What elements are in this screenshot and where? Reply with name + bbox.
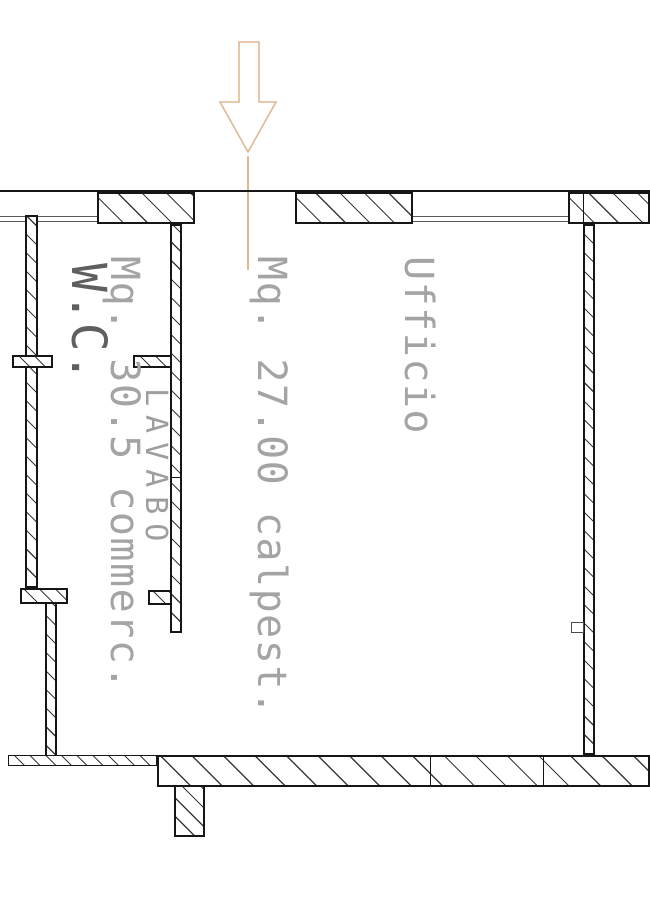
window-sill-left xyxy=(0,216,97,222)
bottom-exterior-wall xyxy=(157,755,650,787)
top-wall-pier-joint-line xyxy=(583,192,584,224)
office-area-commercial-label: Mq. 30.5 commerc. xyxy=(99,256,148,716)
entrance-axis-line xyxy=(247,156,249,270)
top-wall-pier-center xyxy=(295,192,413,224)
floor-plan-canvas: W.C. LAVABO Ufficio Mq. 27.00 calpest. M… xyxy=(0,0,650,920)
top-wall-pier-right xyxy=(568,192,650,224)
bottom-wall-stub xyxy=(174,785,205,837)
top-wall-pier-left xyxy=(97,192,195,224)
bottom-thin-wall xyxy=(8,755,157,766)
right-wall-junction-box xyxy=(571,622,584,633)
office-name-label: Ufficio xyxy=(393,256,442,716)
window-sill-right xyxy=(413,216,568,222)
entrance-arrow-icon xyxy=(218,38,280,158)
office-area-walkable-label: Mq. 27.00 calpest. xyxy=(246,256,295,716)
bottom-wall-joint-1 xyxy=(430,755,431,787)
bottom-wall-joint-2 xyxy=(543,755,544,787)
right-exterior-wall xyxy=(583,224,595,755)
office-label-block: Ufficio Mq. 27.00 calpest. Mq. 30.5 comm… xyxy=(1,256,540,716)
